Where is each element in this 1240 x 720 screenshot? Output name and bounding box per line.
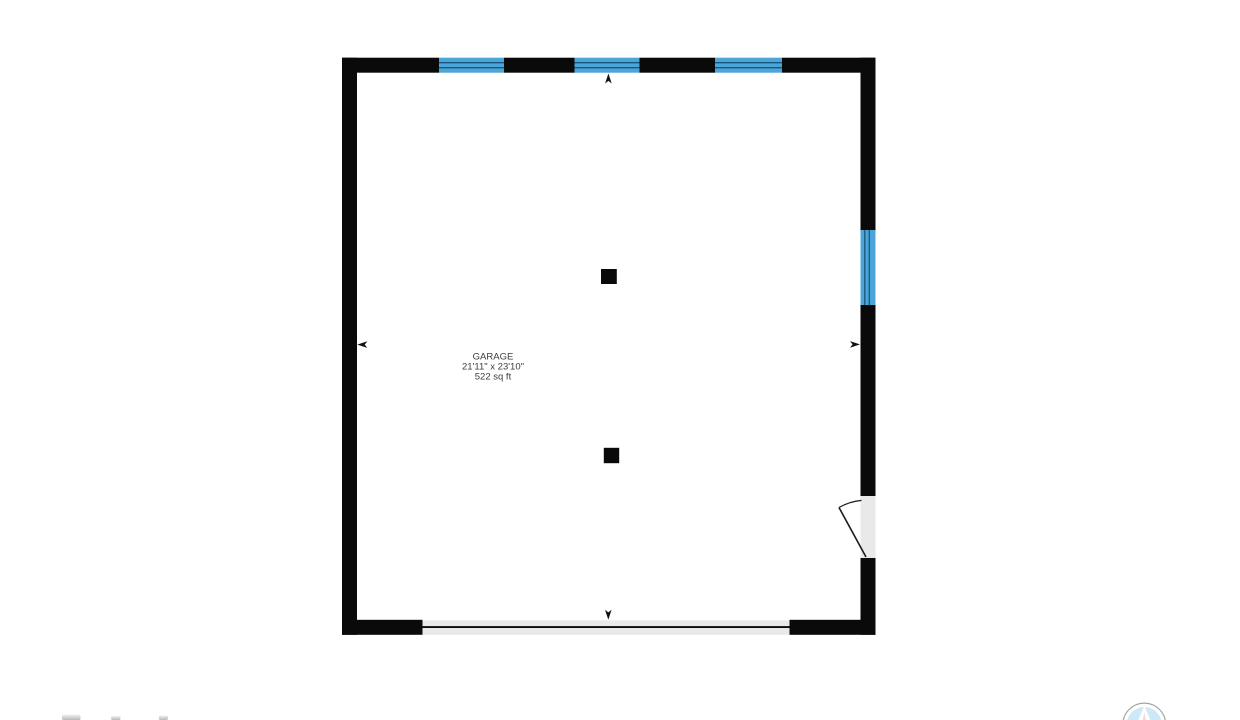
svg-text:522 sq ft: 522 sq ft — [475, 372, 512, 383]
